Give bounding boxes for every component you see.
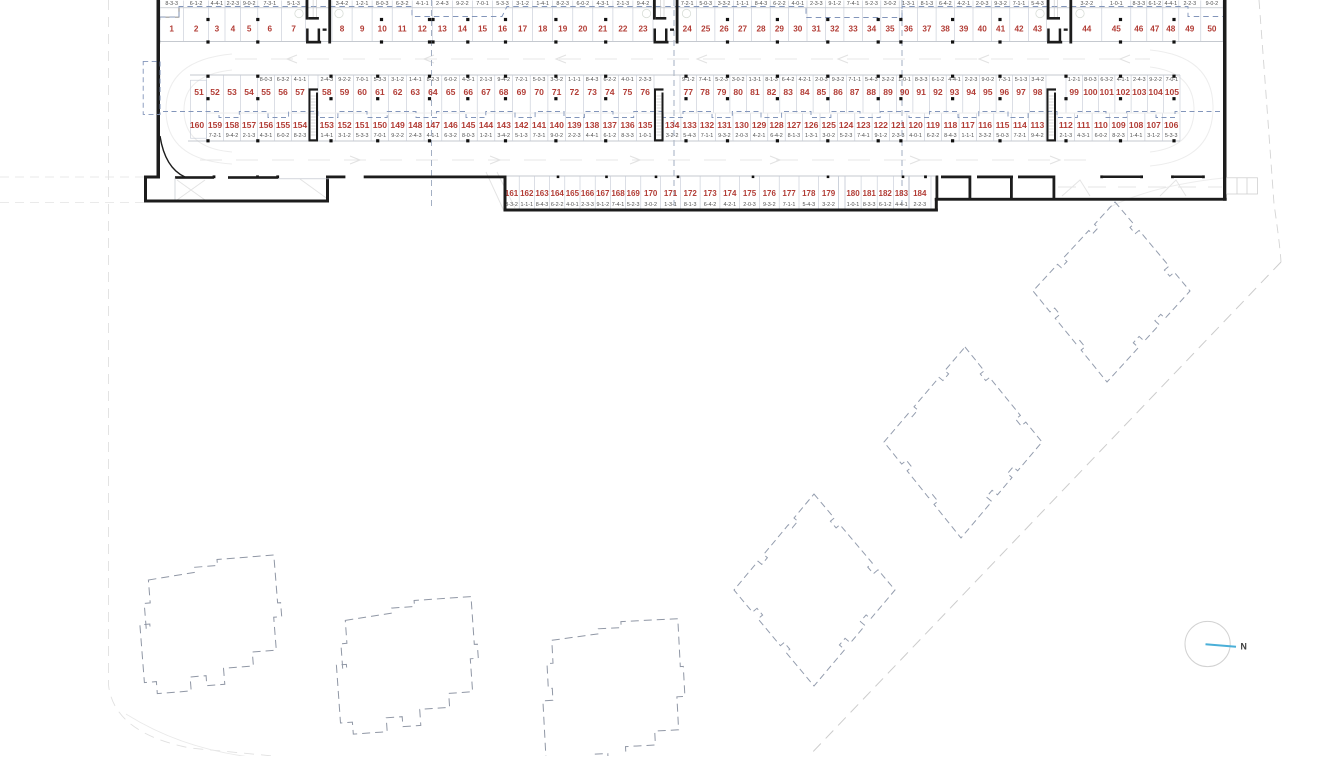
svg-text:176: 176 [763, 189, 777, 198]
svg-text:9-1-2: 9-1-2 [597, 202, 610, 208]
svg-text:184: 184 [913, 189, 927, 198]
svg-text:9-2-2: 9-2-2 [1149, 77, 1162, 83]
svg-text:53: 53 [227, 87, 237, 97]
svg-text:88: 88 [867, 87, 877, 97]
svg-text:6-0-2: 6-0-2 [444, 77, 457, 83]
svg-text:103: 103 [1132, 87, 1147, 97]
svg-text:7-3-1: 7-3-1 [998, 77, 1011, 83]
svg-text:129: 129 [752, 120, 767, 130]
svg-text:74: 74 [605, 87, 615, 97]
svg-text:1-4-1: 1-4-1 [1130, 133, 1143, 139]
svg-text:8-3-3: 8-3-3 [915, 77, 928, 83]
svg-text:69: 69 [517, 87, 527, 97]
svg-text:28: 28 [756, 24, 766, 33]
svg-text:162: 162 [520, 189, 534, 198]
svg-text:1-0-1: 1-0-1 [898, 77, 911, 83]
svg-text:1-4-1: 1-4-1 [321, 133, 334, 139]
svg-text:178: 178 [802, 189, 816, 198]
svg-text:7-0-1: 7-0-1 [476, 1, 489, 7]
svg-text:137: 137 [603, 120, 618, 130]
svg-text:134: 134 [665, 120, 680, 130]
svg-text:170: 170 [644, 189, 658, 198]
svg-text:1-0-1: 1-0-1 [847, 202, 860, 208]
svg-text:5-1-3: 5-1-3 [515, 133, 528, 139]
svg-text:7: 7 [291, 24, 296, 33]
svg-text:145: 145 [461, 120, 476, 130]
svg-text:7-0-1: 7-0-1 [1166, 77, 1179, 83]
svg-text:1-4-1: 1-4-1 [409, 77, 422, 83]
svg-text:1-1-1: 1-1-1 [962, 133, 975, 139]
svg-text:104: 104 [1148, 87, 1163, 97]
svg-text:3-1-2: 3-1-2 [1147, 133, 1160, 139]
svg-text:9-0-2: 9-0-2 [982, 77, 995, 83]
svg-text:6-3-2: 6-3-2 [444, 133, 457, 139]
svg-text:4-0-1: 4-0-1 [909, 133, 922, 139]
svg-text:3-4-2: 3-4-2 [497, 133, 510, 139]
svg-text:175: 175 [743, 189, 757, 198]
svg-text:95: 95 [983, 87, 993, 97]
svg-text:2-3-3: 2-3-3 [810, 1, 823, 7]
svg-text:9-0-2: 9-0-2 [1206, 1, 1219, 7]
svg-text:9-4-2: 9-4-2 [1031, 133, 1044, 139]
svg-text:62: 62 [393, 87, 403, 97]
svg-text:17: 17 [518, 24, 528, 33]
svg-text:57: 57 [295, 87, 305, 97]
svg-text:7-1-1: 7-1-1 [848, 77, 861, 83]
svg-text:106: 106 [1164, 120, 1179, 130]
svg-text:1-2-1: 1-2-1 [480, 133, 493, 139]
svg-text:1: 1 [169, 24, 174, 33]
svg-text:6-4-2: 6-4-2 [782, 77, 795, 83]
svg-text:1-2-1: 1-2-1 [1068, 77, 1081, 83]
svg-text:59: 59 [340, 87, 350, 97]
svg-text:151: 151 [355, 120, 370, 130]
svg-text:4-1-1: 4-1-1 [427, 133, 440, 139]
svg-text:76: 76 [640, 87, 650, 97]
svg-text:124: 124 [839, 120, 854, 130]
svg-text:5-2-3: 5-2-3 [715, 77, 728, 83]
svg-text:111: 111 [1077, 120, 1091, 130]
svg-text:48: 48 [1166, 24, 1176, 33]
svg-text:161: 161 [505, 189, 519, 198]
svg-text:2-4-3: 2-4-3 [1133, 77, 1146, 83]
svg-text:3-0-2: 3-0-2 [644, 202, 657, 208]
svg-text:37: 37 [922, 24, 932, 33]
svg-text:90: 90 [900, 87, 910, 97]
svg-text:9-1-2: 9-1-2 [875, 133, 888, 139]
svg-text:32: 32 [830, 24, 840, 33]
svg-text:8-3-3: 8-3-3 [863, 202, 876, 208]
svg-text:5-4-3: 5-4-3 [803, 202, 816, 208]
svg-text:42: 42 [1014, 24, 1024, 33]
svg-text:2-1-3: 2-1-3 [480, 77, 493, 83]
svg-text:45: 45 [1112, 24, 1122, 33]
svg-text:63: 63 [411, 87, 421, 97]
svg-text:4-3-1: 4-3-1 [1077, 133, 1090, 139]
svg-text:68: 68 [499, 87, 509, 97]
svg-text:8-3-3: 8-3-3 [165, 1, 178, 7]
svg-text:171: 171 [664, 189, 678, 198]
svg-text:144: 144 [479, 120, 494, 130]
svg-text:7-2-1: 7-2-1 [1014, 133, 1027, 139]
svg-text:6-1-2: 6-1-2 [604, 133, 617, 139]
svg-text:29: 29 [775, 24, 785, 33]
svg-text:16: 16 [498, 24, 508, 33]
svg-text:6-3-2: 6-3-2 [277, 77, 290, 83]
svg-text:3-0-2: 3-0-2 [822, 133, 835, 139]
svg-text:132: 132 [700, 120, 715, 130]
svg-text:6-4-2: 6-4-2 [704, 202, 717, 208]
svg-text:146: 146 [443, 120, 458, 130]
svg-text:56: 56 [278, 87, 288, 97]
svg-text:4-1-1: 4-1-1 [1117, 77, 1130, 83]
svg-text:105: 105 [1165, 87, 1180, 97]
svg-text:46: 46 [1134, 24, 1144, 33]
svg-text:5-3-3: 5-3-3 [374, 77, 387, 83]
svg-text:4-1-1: 4-1-1 [294, 77, 307, 83]
svg-text:4-3-1: 4-3-1 [260, 133, 273, 139]
svg-text:40: 40 [978, 24, 988, 33]
svg-text:130: 130 [735, 120, 750, 130]
svg-text:9-2-2: 9-2-2 [456, 1, 469, 7]
svg-text:5-1-3: 5-1-3 [1015, 77, 1028, 83]
svg-text:38: 38 [941, 24, 951, 33]
svg-text:87: 87 [850, 87, 860, 97]
svg-text:182: 182 [879, 189, 893, 198]
svg-text:4-1-1: 4-1-1 [416, 1, 429, 7]
svg-text:3-0-2: 3-0-2 [884, 1, 897, 7]
svg-text:91: 91 [916, 87, 926, 97]
svg-text:109: 109 [1111, 120, 1126, 130]
svg-text:6-3-2: 6-3-2 [1100, 77, 1113, 83]
svg-text:138: 138 [585, 120, 600, 130]
svg-text:181: 181 [863, 189, 877, 198]
svg-text:179: 179 [822, 189, 836, 198]
svg-text:7-1-1: 7-1-1 [701, 133, 714, 139]
svg-text:9-4-2: 9-4-2 [497, 77, 510, 83]
svg-text:97: 97 [1016, 87, 1026, 97]
svg-text:7-2-1: 7-2-1 [209, 133, 222, 139]
svg-text:120: 120 [908, 120, 923, 130]
svg-text:7-4-1: 7-4-1 [612, 202, 625, 208]
svg-text:108: 108 [1129, 120, 1144, 130]
svg-text:165: 165 [566, 189, 580, 198]
svg-text:3-0-2: 3-0-2 [732, 77, 745, 83]
svg-text:4-4-1: 4-4-1 [895, 202, 908, 208]
svg-text:3-2-2: 3-2-2 [666, 133, 679, 139]
svg-text:102: 102 [1116, 87, 1131, 97]
svg-text:167: 167 [596, 189, 610, 198]
svg-text:9-3-2: 9-3-2 [763, 202, 776, 208]
svg-text:22: 22 [618, 24, 628, 33]
svg-text:2-4-3: 2-4-3 [321, 77, 334, 83]
svg-text:24: 24 [683, 24, 693, 33]
svg-text:81: 81 [750, 87, 760, 97]
svg-text:80: 80 [733, 87, 743, 97]
svg-text:128: 128 [769, 120, 784, 130]
svg-text:43: 43 [1033, 24, 1043, 33]
svg-text:8-2-3: 8-2-3 [1112, 133, 1125, 139]
svg-text:139: 139 [567, 120, 582, 130]
svg-text:4-4-1: 4-4-1 [948, 77, 961, 83]
svg-text:13: 13 [438, 24, 448, 33]
svg-text:174: 174 [723, 189, 737, 198]
svg-text:54: 54 [244, 87, 254, 97]
svg-text:159: 159 [208, 120, 223, 130]
svg-text:110: 110 [1094, 120, 1108, 130]
svg-text:141: 141 [532, 120, 547, 130]
svg-text:156: 156 [259, 120, 274, 130]
svg-text:113: 113 [1030, 120, 1044, 130]
svg-text:70: 70 [534, 87, 544, 97]
svg-text:107: 107 [1146, 120, 1161, 130]
svg-text:83: 83 [783, 87, 793, 97]
svg-text:8-1-3: 8-1-3 [788, 133, 801, 139]
svg-text:2-1-3: 2-1-3 [1060, 133, 1073, 139]
svg-text:55: 55 [261, 87, 271, 97]
svg-text:158: 158 [225, 120, 240, 130]
svg-text:155: 155 [276, 120, 291, 130]
svg-text:23: 23 [638, 24, 648, 33]
svg-text:2-3-3: 2-3-3 [581, 202, 594, 208]
svg-text:142: 142 [514, 120, 529, 130]
svg-text:79: 79 [717, 87, 727, 97]
svg-text:47: 47 [1150, 24, 1160, 33]
svg-text:160: 160 [190, 120, 205, 130]
svg-text:92: 92 [933, 87, 943, 97]
svg-text:135: 135 [638, 120, 653, 130]
svg-text:3-4-2: 3-4-2 [1031, 77, 1044, 83]
svg-text:114: 114 [1013, 120, 1027, 130]
svg-text:101: 101 [1100, 87, 1115, 97]
svg-text:78: 78 [700, 87, 710, 97]
svg-text:60: 60 [357, 87, 367, 97]
svg-text:67: 67 [481, 87, 491, 97]
svg-text:2: 2 [194, 24, 199, 33]
svg-text:31: 31 [812, 24, 822, 33]
svg-text:122: 122 [874, 120, 889, 130]
svg-text:9-2-2: 9-2-2 [338, 77, 351, 83]
svg-text:8-0-3: 8-0-3 [1084, 77, 1097, 83]
svg-text:65: 65 [446, 87, 456, 97]
svg-text:98: 98 [1033, 87, 1043, 97]
svg-text:8-2-3: 8-2-3 [427, 77, 440, 83]
svg-text:2-3-3: 2-3-3 [639, 77, 652, 83]
svg-text:18: 18 [538, 24, 548, 33]
svg-text:147: 147 [426, 120, 441, 130]
svg-text:168: 168 [611, 189, 625, 198]
svg-text:27: 27 [738, 24, 748, 33]
svg-text:86: 86 [833, 87, 843, 97]
svg-text:6-1-2: 6-1-2 [879, 202, 892, 208]
svg-text:8-3-3: 8-3-3 [621, 133, 634, 139]
svg-text:121: 121 [891, 120, 906, 130]
svg-text:77: 77 [684, 87, 694, 97]
svg-text:9-1-2: 9-1-2 [682, 77, 695, 83]
svg-text:7-4-1: 7-4-1 [699, 77, 712, 83]
svg-text:5-2-3: 5-2-3 [865, 1, 878, 7]
svg-text:125: 125 [822, 120, 837, 130]
svg-text:5-4-3: 5-4-3 [683, 133, 696, 139]
svg-text:6-0-2: 6-0-2 [1095, 133, 1108, 139]
svg-text:4-2-1: 4-2-1 [799, 77, 812, 83]
svg-text:25: 25 [701, 24, 711, 33]
svg-text:3-3-2: 3-3-2 [550, 77, 563, 83]
svg-text:2-1-3: 2-1-3 [243, 133, 256, 139]
svg-text:117: 117 [961, 120, 975, 130]
svg-text:133: 133 [682, 120, 697, 130]
svg-text:119: 119 [926, 120, 940, 130]
svg-text:1-3-1: 1-3-1 [664, 202, 677, 208]
svg-text:163: 163 [535, 189, 549, 198]
svg-text:3-3-2: 3-3-2 [505, 202, 518, 208]
svg-text:33: 33 [849, 24, 859, 33]
svg-text:2-4-3: 2-4-3 [436, 1, 449, 7]
svg-text:64: 64 [428, 87, 438, 97]
svg-text:166: 166 [581, 189, 595, 198]
svg-text:72: 72 [570, 87, 580, 97]
svg-text:136: 136 [620, 120, 635, 130]
svg-text:6-2-2: 6-2-2 [927, 133, 940, 139]
svg-text:112: 112 [1059, 120, 1073, 130]
svg-text:73: 73 [587, 87, 597, 97]
svg-text:2-4-3: 2-4-3 [409, 133, 422, 139]
svg-text:84: 84 [800, 87, 810, 97]
svg-text:11: 11 [398, 24, 407, 33]
svg-text:2-0-3: 2-0-3 [743, 202, 756, 208]
svg-text:9-3-2: 9-3-2 [832, 77, 845, 83]
svg-text:8-4-3: 8-4-3 [536, 202, 549, 208]
svg-text:5: 5 [247, 24, 252, 33]
svg-text:21: 21 [598, 24, 608, 33]
svg-text:9-4-2: 9-4-2 [226, 133, 239, 139]
svg-text:9-3-2: 9-3-2 [718, 133, 731, 139]
svg-text:143: 143 [497, 120, 512, 130]
svg-text:10: 10 [378, 24, 388, 33]
svg-text:44: 44 [1082, 24, 1092, 33]
svg-text:5-0-3: 5-0-3 [996, 133, 1009, 139]
svg-text:5-0-3: 5-0-3 [533, 77, 546, 83]
svg-text:71: 71 [552, 87, 562, 97]
svg-text:66: 66 [464, 87, 474, 97]
svg-text:61: 61 [375, 87, 385, 97]
svg-text:8-1-3: 8-1-3 [765, 77, 778, 83]
svg-text:35: 35 [885, 24, 895, 33]
svg-text:3-2-2: 3-2-2 [882, 77, 895, 83]
svg-text:3: 3 [215, 24, 220, 33]
svg-text:148: 148 [408, 120, 423, 130]
svg-text:9: 9 [360, 24, 365, 33]
svg-text:7-4-1: 7-4-1 [847, 1, 860, 7]
svg-text:2-3-3: 2-3-3 [892, 133, 905, 139]
svg-text:5-3-3: 5-3-3 [356, 133, 369, 139]
svg-text:6-2-2: 6-2-2 [604, 77, 617, 83]
svg-text:4-4-1: 4-4-1 [586, 133, 599, 139]
svg-text:8-4-3: 8-4-3 [586, 77, 599, 83]
svg-text:2-2-3: 2-2-3 [568, 133, 581, 139]
svg-text:8-0-3: 8-0-3 [260, 77, 273, 83]
svg-text:7-0-1: 7-0-1 [374, 133, 387, 139]
svg-text:177: 177 [782, 189, 796, 198]
svg-text:41: 41 [996, 24, 1006, 33]
svg-text:173: 173 [703, 189, 717, 198]
svg-text:15: 15 [478, 24, 488, 33]
svg-text:4: 4 [231, 24, 236, 33]
svg-text:6-2-2: 6-2-2 [551, 202, 564, 208]
svg-text:8: 8 [340, 24, 345, 33]
svg-text:4-0-1: 4-0-1 [566, 202, 579, 208]
svg-text:7-1-1: 7-1-1 [783, 202, 796, 208]
svg-text:116: 116 [978, 120, 992, 130]
svg-text:5-3-3: 5-3-3 [1165, 133, 1178, 139]
svg-text:100: 100 [1083, 87, 1098, 97]
svg-text:164: 164 [551, 189, 565, 198]
svg-text:6-4-2: 6-4-2 [770, 133, 783, 139]
svg-text:58: 58 [322, 87, 332, 97]
svg-text:123: 123 [856, 120, 871, 130]
svg-text:99: 99 [1069, 87, 1079, 97]
svg-text:149: 149 [390, 120, 405, 130]
svg-text:7-4-1: 7-4-1 [857, 133, 870, 139]
svg-text:131: 131 [717, 120, 732, 130]
svg-text:8-1-3: 8-1-3 [684, 202, 697, 208]
svg-text:30: 30 [793, 24, 803, 33]
svg-text:140: 140 [550, 120, 565, 130]
svg-text:1-1-1: 1-1-1 [521, 202, 534, 208]
svg-text:82: 82 [767, 87, 777, 97]
svg-text:5-2-3: 5-2-3 [627, 202, 640, 208]
svg-text:9-1-2: 9-1-2 [828, 1, 841, 7]
svg-text:96: 96 [1000, 87, 1010, 97]
svg-text:150: 150 [373, 120, 388, 130]
svg-text:6-1-2: 6-1-2 [932, 77, 945, 83]
svg-text:8-4-3: 8-4-3 [944, 133, 957, 139]
svg-text:152: 152 [337, 120, 352, 130]
svg-text:7-3-1: 7-3-1 [533, 133, 546, 139]
svg-text:94: 94 [966, 87, 976, 97]
svg-text:9-0-2: 9-0-2 [550, 133, 563, 139]
svg-text:3-1-2: 3-1-2 [391, 77, 404, 83]
svg-text:115: 115 [996, 120, 1010, 130]
svg-text:52: 52 [210, 87, 220, 97]
svg-text:36: 36 [904, 24, 914, 33]
svg-text:N: N [1241, 642, 1247, 652]
svg-text:7-0-1: 7-0-1 [356, 77, 369, 83]
svg-text:126: 126 [804, 120, 819, 130]
svg-text:4-2-1: 4-2-1 [753, 133, 766, 139]
svg-text:6-0-2: 6-0-2 [277, 133, 290, 139]
svg-text:1-0-1: 1-0-1 [639, 133, 652, 139]
svg-text:49: 49 [1185, 24, 1195, 33]
svg-text:154: 154 [293, 120, 308, 130]
svg-text:172: 172 [684, 189, 698, 198]
svg-text:2-0-3: 2-0-3 [735, 133, 748, 139]
svg-text:14: 14 [458, 24, 468, 33]
svg-text:8-0-3: 8-0-3 [462, 133, 475, 139]
svg-text:20: 20 [578, 24, 588, 33]
svg-text:39: 39 [959, 24, 969, 33]
svg-text:6: 6 [268, 24, 273, 33]
svg-text:4-0-1: 4-0-1 [621, 77, 634, 83]
svg-text:26: 26 [720, 24, 730, 33]
svg-text:8-2-3: 8-2-3 [294, 133, 307, 139]
svg-text:127: 127 [787, 120, 802, 130]
svg-text:3-3-2: 3-3-2 [979, 133, 992, 139]
svg-text:2-2-3: 2-2-3 [965, 77, 978, 83]
svg-text:153: 153 [320, 120, 335, 130]
svg-text:169: 169 [627, 189, 641, 198]
svg-text:4-2-1: 4-2-1 [724, 202, 737, 208]
